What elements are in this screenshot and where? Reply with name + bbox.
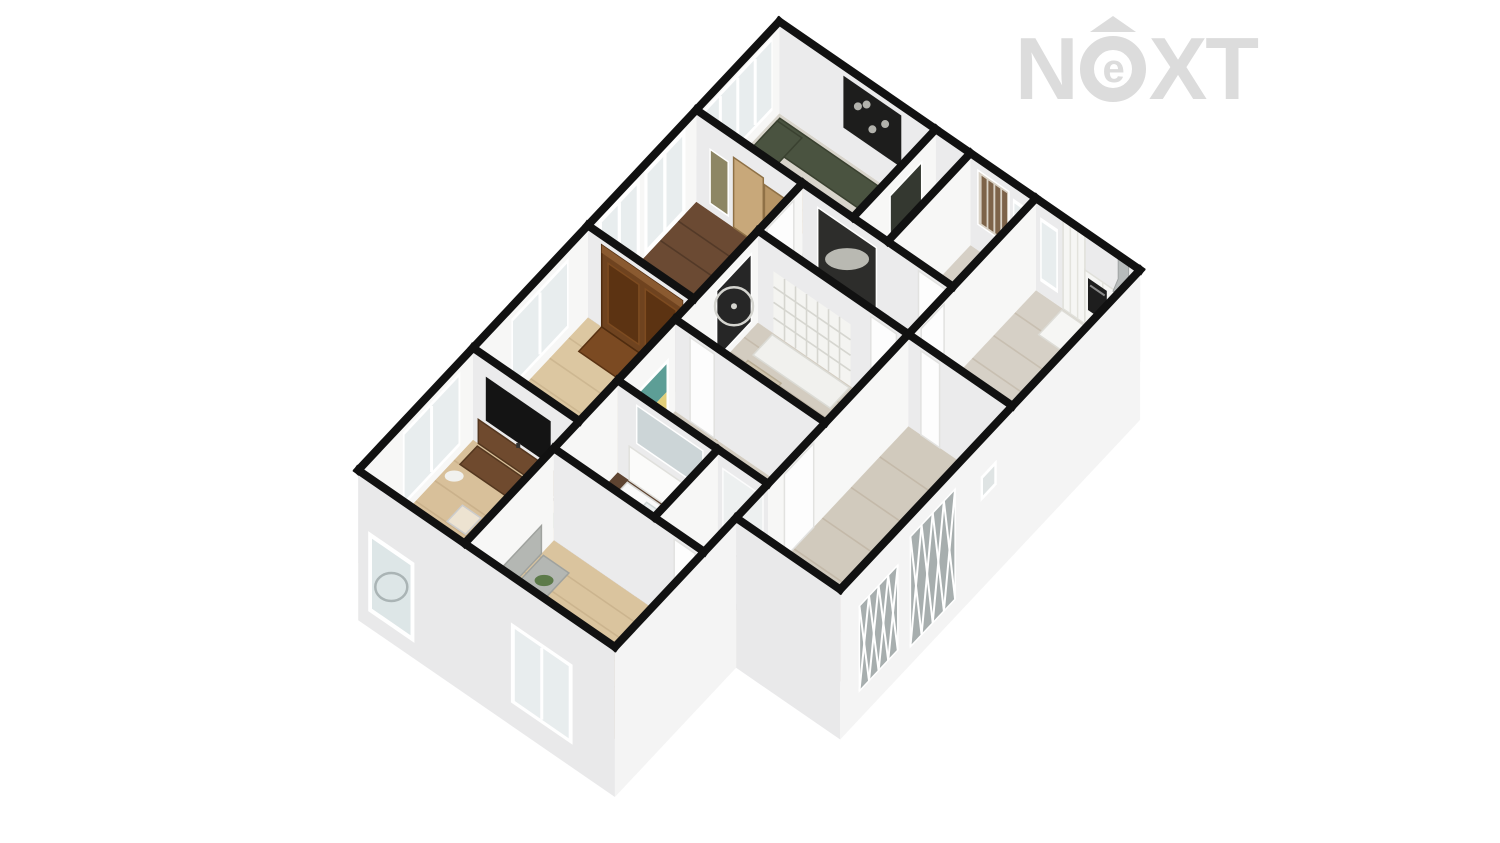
art-horse-figure (825, 248, 869, 270)
wall-art (710, 149, 728, 216)
next-watermark-logo: N e XT (1015, 34, 1257, 104)
art-detail (863, 101, 871, 109)
logo-caret-icon (1090, 16, 1136, 32)
art-stripe-line (988, 180, 993, 232)
ferris-hub (731, 303, 737, 309)
logo-letter-e: e (1102, 52, 1122, 86)
door-face (690, 337, 714, 438)
art-detail (854, 102, 862, 110)
art-stripe-line (995, 185, 1000, 237)
floorplan-3d-render (0, 0, 1500, 843)
door-face (921, 351, 940, 448)
plant-dresser (535, 575, 554, 586)
logo-ring-icon: e (1080, 36, 1146, 102)
art-stripe-line (982, 176, 987, 228)
window-glass (1042, 222, 1057, 288)
art-detail (868, 125, 876, 133)
art-detail (881, 120, 889, 128)
page: N e XT (0, 0, 1500, 843)
kitchen-cabinet (1063, 221, 1085, 324)
logo-letter-n: N (1015, 34, 1077, 104)
logo-letters-xt: XT (1149, 34, 1257, 104)
floor-lamp (445, 470, 464, 481)
